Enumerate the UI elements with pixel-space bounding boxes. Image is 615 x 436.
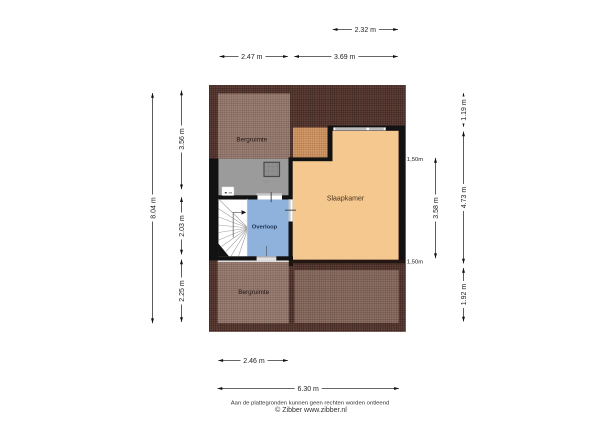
svg-text:2.32 m: 2.32 m (355, 27, 377, 34)
svg-text:3.58 m: 3.58 m (433, 197, 440, 219)
svg-text:3.56 m: 3.56 m (179, 128, 186, 150)
svg-text:© Zibber www.zibber.nl: © Zibber www.zibber.nl (275, 406, 347, 414)
svg-text:Bergruimte: Bergruimte (238, 289, 269, 296)
svg-text:Overloop: Overloop (252, 225, 278, 231)
svg-text:6.30 m: 6.30 m (297, 386, 319, 393)
svg-text:8.04 m: 8.04 m (150, 197, 157, 219)
svg-text:4.73 m: 4.73 m (461, 187, 468, 209)
svg-text:Aan de plattegronden kunnen ge: Aan de plattegronden kunnen geen rechten… (231, 400, 390, 406)
svg-text:2.46 m: 2.46 m (243, 358, 265, 365)
svg-text:1.92 m: 1.92 m (461, 284, 468, 306)
svg-text:Bergruimte: Bergruimte (236, 137, 267, 144)
svg-text:1,50m: 1,50m (407, 260, 423, 266)
svg-text:1.19 m: 1.19 m (461, 99, 468, 121)
svg-text:2.47 m: 2.47 m (241, 54, 263, 61)
svg-text:2.03 m: 2.03 m (179, 215, 186, 237)
svg-text:3.69 m: 3.69 m (334, 54, 356, 61)
svg-text:Slaapkamer: Slaapkamer (327, 195, 365, 202)
svg-text:1,50m: 1,50m (407, 157, 423, 163)
svg-text:2.25 m: 2.25 m (179, 280, 186, 302)
